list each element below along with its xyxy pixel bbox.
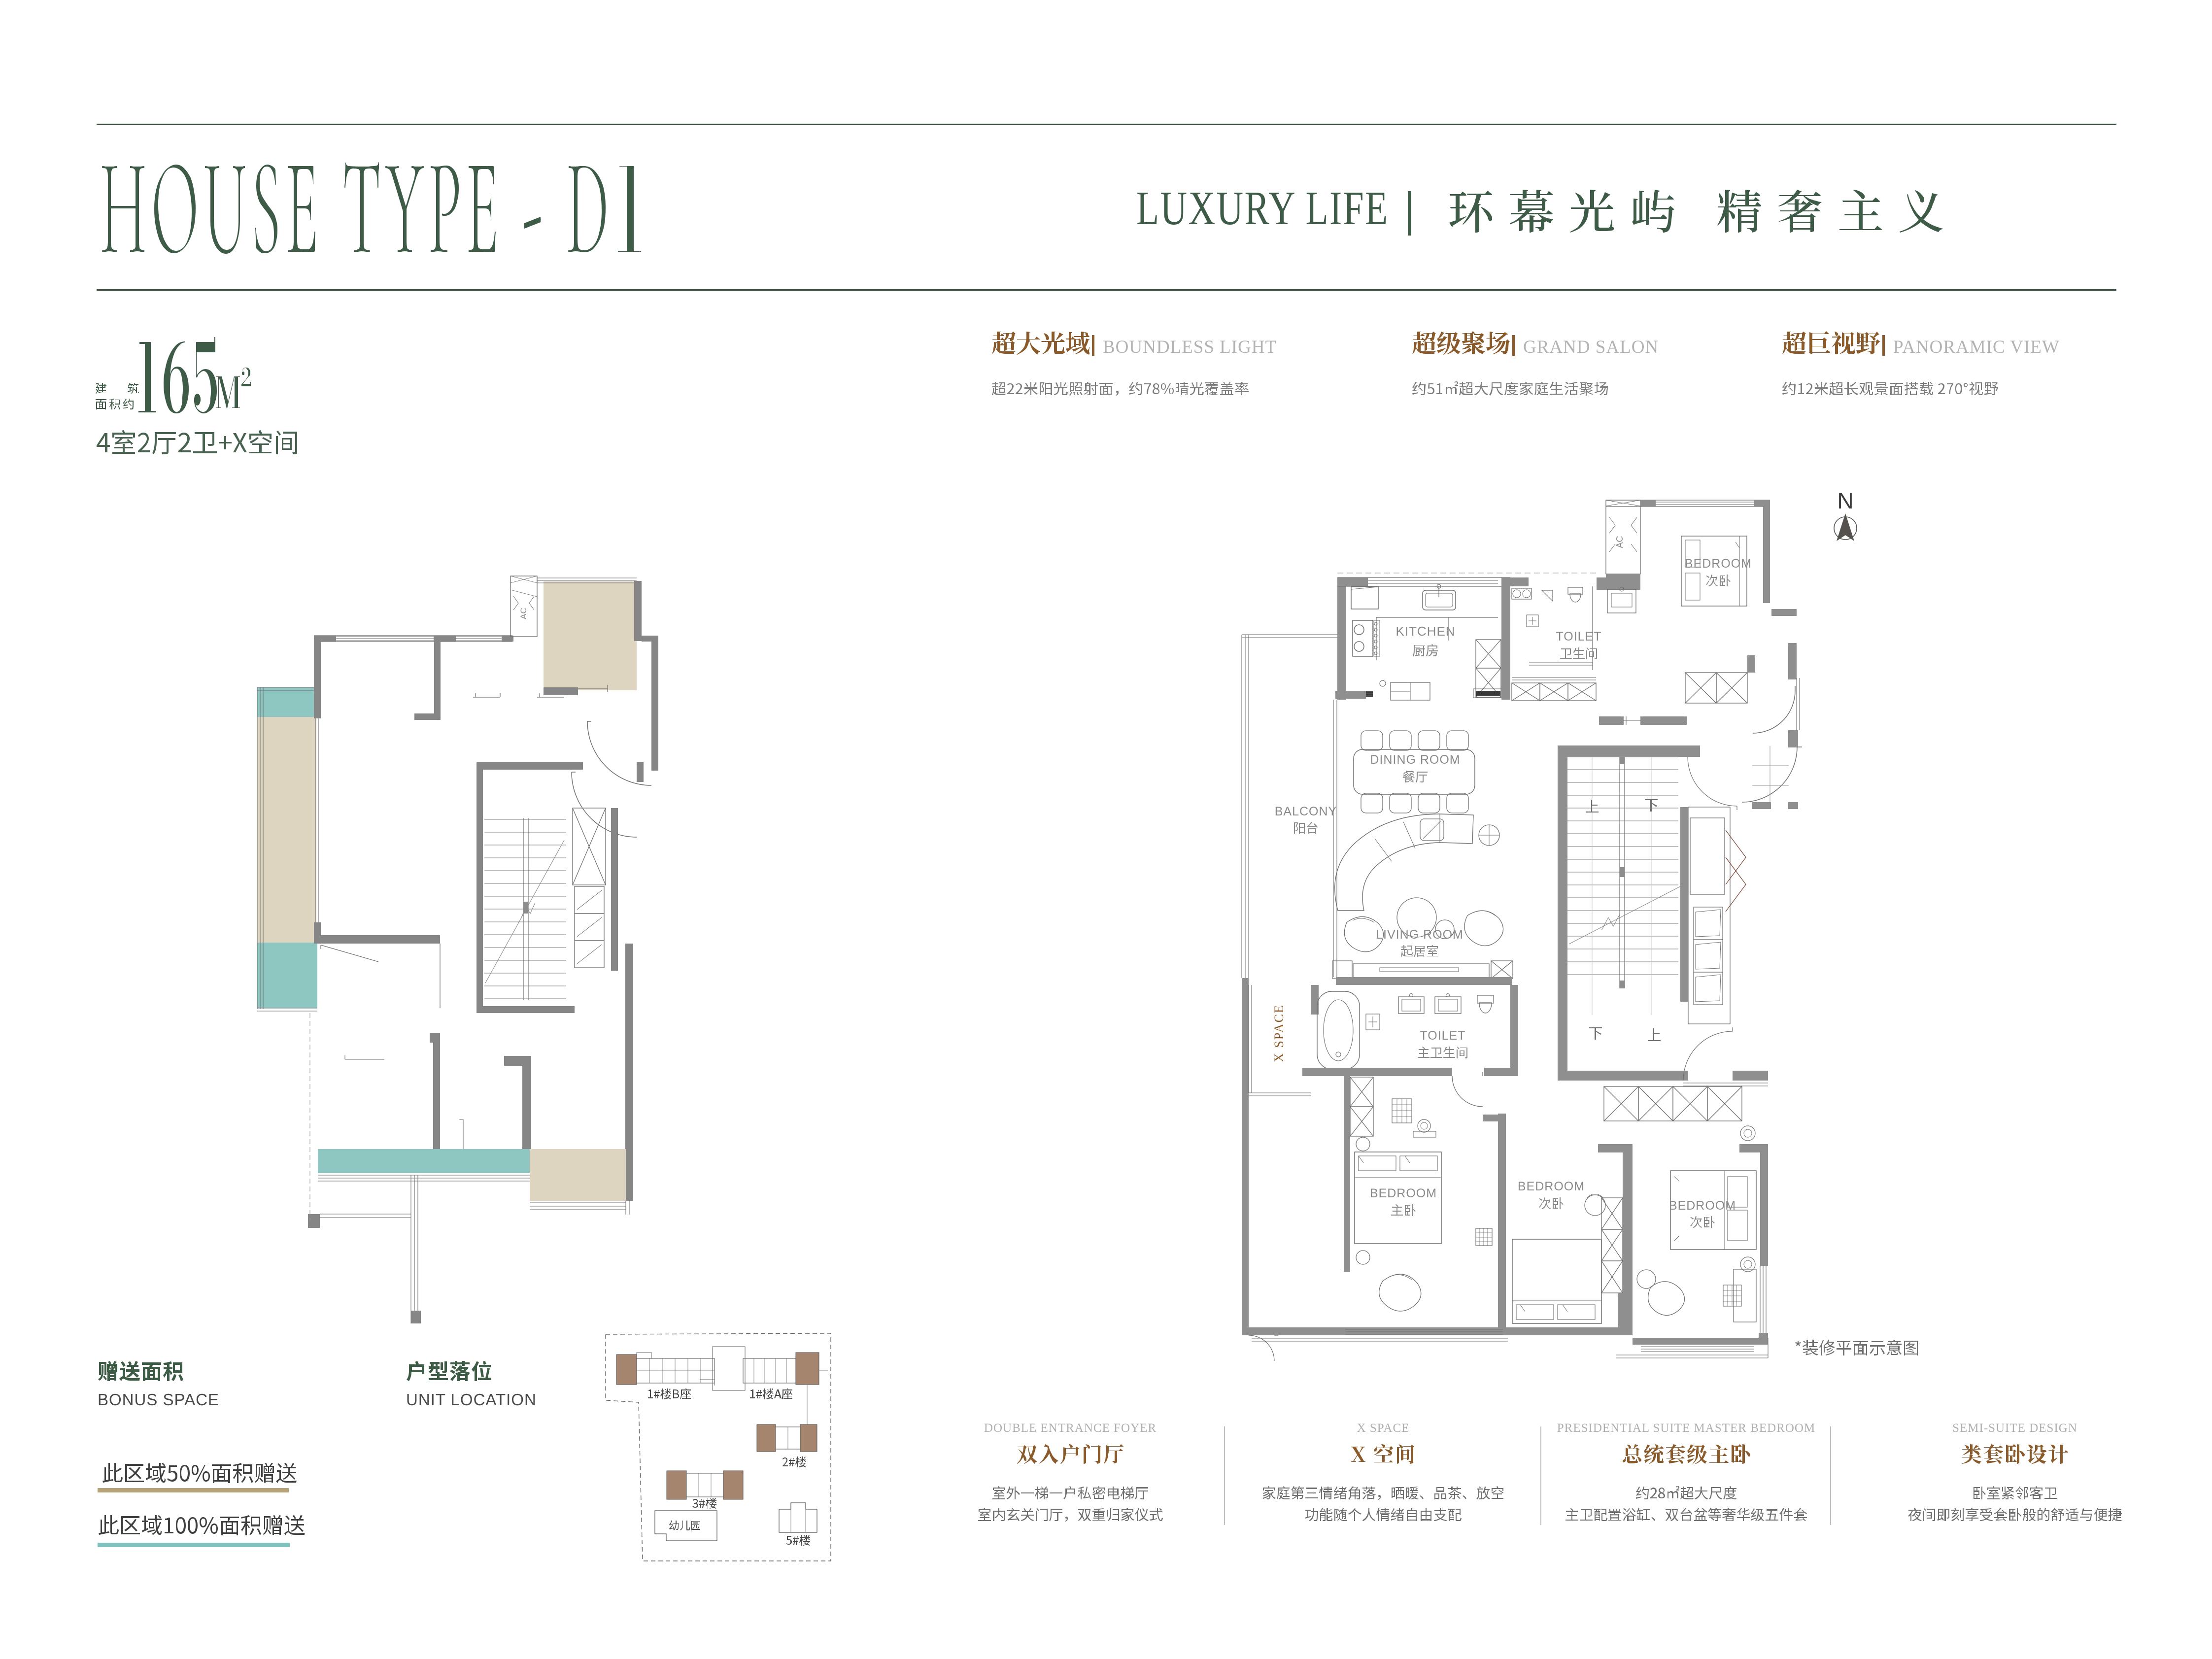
svg-text:BEDROOM: BEDROOM [1685, 557, 1752, 571]
svg-text:PANORAMIC VIEW: PANORAMIC VIEW [1893, 337, 2060, 357]
svg-text:BOUNDLESS LIGHT: BOUNDLESS LIGHT [1103, 337, 1277, 357]
svg-text:BEDROOM: BEDROOM [1518, 1180, 1585, 1193]
svg-text:BEDROOM: BEDROOM [1669, 1199, 1736, 1213]
svg-text:BALCONY: BALCONY [1275, 805, 1337, 818]
svg-text:SEMI-SUITE DESIGN: SEMI-SUITE DESIGN [1952, 1422, 2077, 1435]
svg-text:X SPACE: X SPACE [1272, 1004, 1286, 1062]
svg-text:X SPACE: X SPACE [1357, 1422, 1410, 1435]
svg-text:BEDROOM: BEDROOM [1370, 1186, 1437, 1200]
svg-text:AC: AC [1615, 536, 1625, 548]
svg-text:LIVING ROOM: LIVING ROOM [1376, 928, 1463, 942]
svg-text:BONUS SPACE: BONUS SPACE [98, 1390, 219, 1409]
svg-text:AC: AC [519, 608, 528, 619]
svg-text:DINING ROOM: DINING ROOM [1370, 753, 1460, 767]
svg-text:GRAND SALON: GRAND SALON [1523, 337, 1659, 357]
svg-text:PRESIDENTIAL SUITE MASTER BEDR: PRESIDENTIAL SUITE MASTER BEDROOM [1557, 1422, 1815, 1435]
svg-text:LUXURY LIFE: LUXURY LIFE [1136, 181, 1389, 235]
svg-text:TOILET: TOILET [1556, 630, 1601, 643]
svg-text:DOUBLE ENTRANCE FOYER: DOUBLE ENTRANCE FOYER [984, 1422, 1157, 1435]
svg-text:KITCHEN: KITCHEN [1395, 624, 1455, 639]
svg-text:TOILET: TOILET [1420, 1029, 1465, 1043]
svg-text:N: N [1837, 488, 1853, 513]
svg-text:UNIT LOCATION: UNIT LOCATION [406, 1390, 537, 1409]
